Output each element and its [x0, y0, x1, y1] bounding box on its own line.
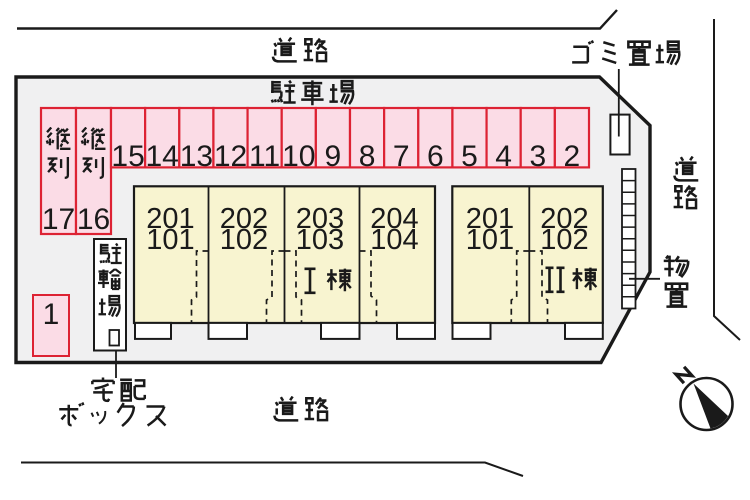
svg-text:17: 17	[42, 203, 75, 236]
svg-text:102: 102	[220, 224, 268, 256]
svg-text:13: 13	[180, 140, 213, 173]
svg-text:5: 5	[461, 140, 478, 173]
svg-text:12: 12	[214, 140, 247, 173]
svg-text:101: 101	[146, 224, 194, 256]
svg-text:9: 9	[325, 140, 342, 173]
svg-text:6: 6	[427, 140, 444, 173]
svg-text:3: 3	[529, 140, 546, 173]
svg-text:8: 8	[359, 140, 376, 173]
svg-text:4: 4	[495, 140, 512, 173]
svg-text:102: 102	[540, 224, 588, 256]
svg-text:104: 104	[370, 224, 418, 256]
svg-text:15: 15	[111, 140, 144, 173]
svg-text:2: 2	[564, 140, 581, 173]
svg-text:16: 16	[77, 203, 110, 236]
svg-text:1: 1	[43, 298, 60, 331]
svg-text:103: 103	[296, 224, 344, 256]
svg-text:10: 10	[282, 140, 315, 173]
svg-text:7: 7	[393, 140, 410, 173]
svg-text:14: 14	[146, 140, 179, 173]
svg-text:101: 101	[466, 224, 514, 256]
svg-text:11: 11	[249, 140, 280, 173]
